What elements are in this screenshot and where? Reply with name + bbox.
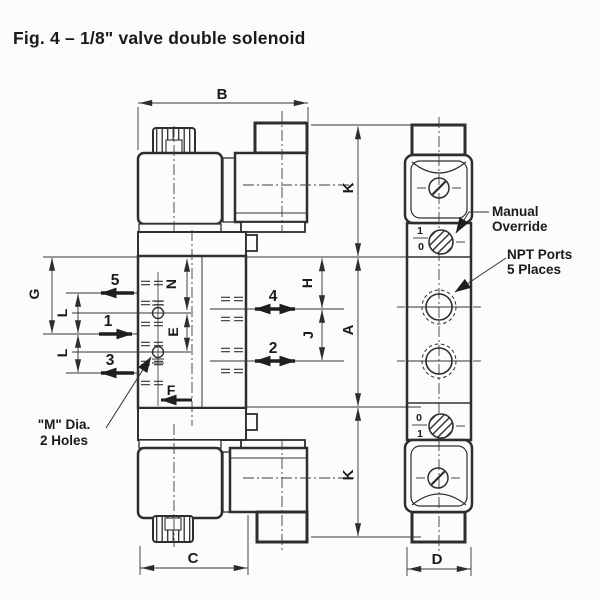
- m-dia-note-line2: 2 Holes: [22, 434, 106, 448]
- manual-override-label-line2: Override: [492, 220, 548, 234]
- dim-label-d: D: [425, 547, 449, 571]
- top-din-connector: [235, 153, 307, 222]
- dim-label-h: H: [295, 271, 319, 295]
- manual-override-label-line1: Manual: [492, 205, 539, 219]
- dim-label-l-lower: L: [50, 341, 74, 365]
- npt-ports-label-line2: 5 Places: [507, 263, 561, 277]
- port-label-3: 3: [102, 352, 118, 370]
- port-label-5: 5: [107, 272, 123, 290]
- dim-label-k-upper: K: [336, 176, 360, 200]
- top-solenoid: [138, 153, 222, 224]
- dim-label-l-upper: L: [50, 301, 74, 325]
- figure-title: Fig. 4 – 1/8" valve double solenoid: [13, 30, 305, 48]
- npt-ports-label-line1: NPT Ports: [507, 248, 572, 262]
- dim-label-n: N: [159, 272, 183, 296]
- figure-4-valve-drawing: Fig. 4 – 1/8" valve double solenoid B C …: [0, 0, 600, 600]
- override-top-pos-0: 0: [415, 241, 427, 253]
- side-bottom-cable-entry: [412, 512, 465, 542]
- dim-label-e: E: [161, 320, 185, 344]
- dim-label-k-lower: K: [336, 463, 360, 487]
- override-bottom-pos-1: 1: [414, 428, 426, 440]
- dim-label-j: J: [296, 323, 320, 347]
- dim-label-b: B: [210, 82, 234, 106]
- side-top-cable-entry: [412, 125, 465, 155]
- port-label-4: 4: [265, 288, 281, 306]
- override-top-pos-1: 1: [414, 225, 426, 237]
- dim-label-c: C: [181, 546, 205, 570]
- port-label-2: 2: [265, 340, 281, 358]
- dim-label-f: F: [162, 378, 180, 402]
- valve-drawing-canvas: [0, 0, 600, 600]
- top-cable-entry: [255, 123, 307, 153]
- override-bottom-pos-0: 0: [413, 412, 425, 424]
- m-dia-note-line1: "M" Dia.: [22, 418, 106, 432]
- port-label-1: 1: [100, 313, 116, 331]
- dim-label-g: G: [22, 282, 46, 306]
- bottom-solenoid: [138, 448, 222, 518]
- dim-label-a: A: [336, 318, 360, 342]
